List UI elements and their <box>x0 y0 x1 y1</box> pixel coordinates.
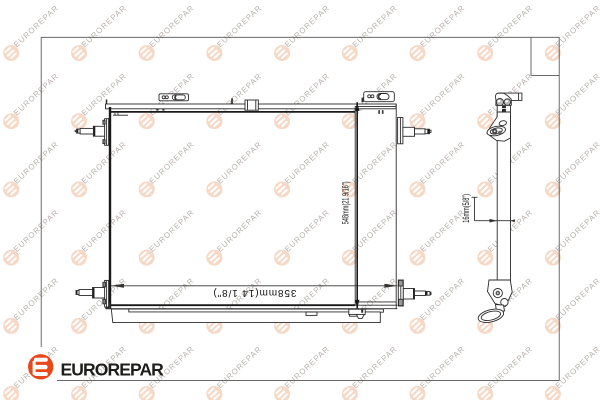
svg-text:EUROREPAR: EUROREPAR <box>61 359 165 379</box>
svg-text:358mm(14 1/8"): 358mm(14 1/8") <box>213 287 297 298</box>
svg-text:548mm(21 9/16"): 548mm(21 9/16") <box>340 181 351 224</box>
svg-text:16mm(5/8"): 16mm(5/8") <box>461 193 472 222</box>
